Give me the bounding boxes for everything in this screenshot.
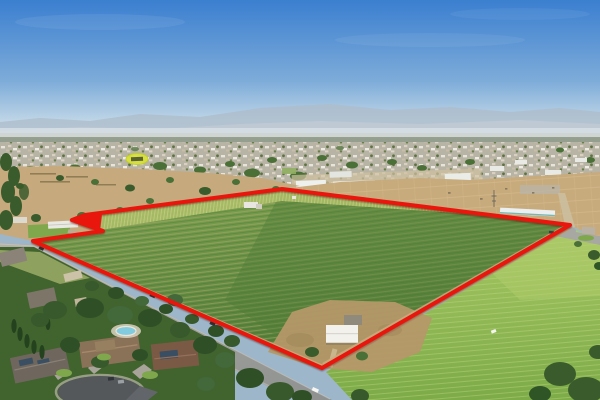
cloud-wisp <box>15 14 185 30</box>
farm-house <box>13 217 27 223</box>
swimming-pool <box>111 324 141 338</box>
cloud-wisp <box>450 8 590 20</box>
aerial-photo-canvas <box>0 0 600 400</box>
large-home-right <box>151 340 199 371</box>
aerial-photo <box>0 0 600 400</box>
park-strip <box>282 168 296 174</box>
parking-lot <box>520 185 560 194</box>
highlighted-building <box>126 154 148 165</box>
gray-shed <box>344 315 362 325</box>
top-shed <box>244 202 258 208</box>
cloud-wisp <box>335 33 525 47</box>
